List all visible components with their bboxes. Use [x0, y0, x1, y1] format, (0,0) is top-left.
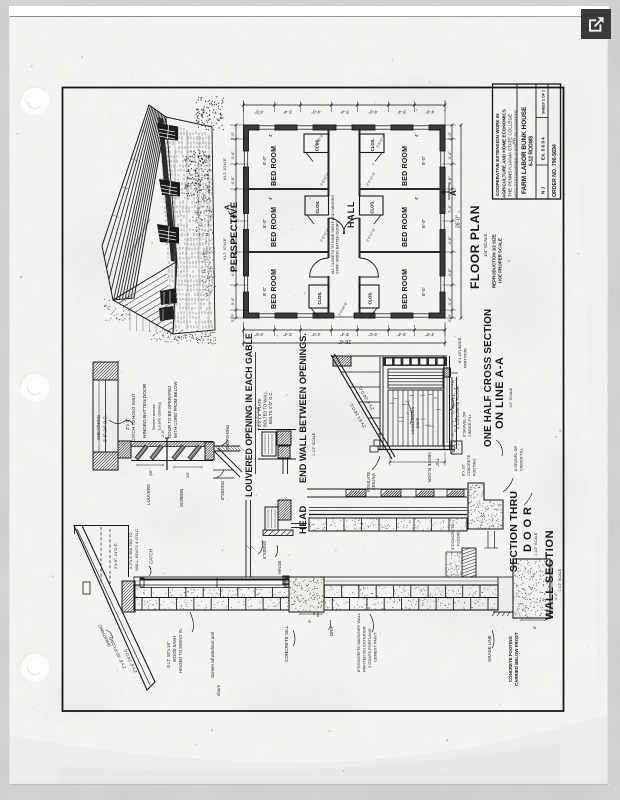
- svg-text:4'-0": 4'-0": [311, 332, 320, 337]
- svg-text:8'-0": 8'-0": [421, 218, 426, 228]
- svg-text:CLOS.: CLOS.: [315, 201, 320, 214]
- svg-text:WOOD SASH: WOOD SASH: [172, 636, 177, 662]
- svg-text:CONCRETE: CONCRETE: [467, 454, 471, 476]
- svg-text:4'-8": 4'-8": [447, 176, 452, 185]
- svg-text:ORDER NO. 790-5694: ORDER NO. 790-5694: [552, 144, 558, 197]
- svg-text:4'-0": 4'-0": [254, 332, 263, 337]
- svg-text:COOPERATIVE EXTENSION WORK IN: COOPERATIVE EXTENSION WORK IN: [495, 113, 500, 196]
- svg-text:DOOR: DOOR: [416, 417, 420, 428]
- svg-text:4': 4': [268, 133, 273, 137]
- svg-text:doors: doors: [216, 684, 221, 696]
- svg-text:FOOTING: FOOTING: [473, 459, 477, 476]
- svg-text:DOOR TO BE OPERATED: DOOR TO BE OPERATED: [167, 386, 172, 438]
- svg-text:4"CONCRETE FLOOR: 4"CONCRETE FLOOR: [455, 386, 460, 429]
- svg-text:CARRIED BELOW FROST: CARRIED BELOW FROST: [514, 632, 519, 686]
- svg-text:6"SIDING: 6"SIDING: [220, 480, 225, 500]
- svg-text:STRIP, WOOD BATTEN DOORS: STRIP, WOOD BATTEN DOORS: [336, 221, 340, 274]
- svg-text:CLOS.: CLOS.: [367, 292, 372, 305]
- svg-text:8'-0": 8'-0": [262, 218, 267, 228]
- svg-text:CEILING: CEILING: [371, 473, 376, 490]
- svg-text:3'-4": 3'-4": [230, 151, 235, 160]
- svg-text:6"GRAVEL OR: 6"GRAVEL OR: [463, 412, 467, 437]
- svg-text:4'-8": 4'-8": [230, 268, 235, 277]
- svg-text:HINGED BATTEN: HINGED BATTEN: [411, 406, 415, 434]
- svg-text:26'-0": 26'-0": [456, 215, 462, 228]
- svg-text:WITH CORD FROM BELOW: WITH CORD FROM BELOW: [173, 381, 178, 438]
- svg-text:HINGE: HINGE: [277, 561, 282, 574]
- svg-text:BOLTED TO WALL.: BOLTED TO WALL.: [263, 390, 268, 427]
- svg-text:THE PENNSYLVANIA STATE COLLEGE: THE PENNSYLVANIA STATE COLLEGE: [508, 114, 513, 197]
- svg-text:FARM LABOR BUNK HOUSE: FARM LABOR BUNK HOUSE: [521, 106, 528, 194]
- svg-text:1/4" SCALE: 1/4" SCALE: [509, 387, 513, 408]
- svg-text:4'-0": 4'-0": [425, 332, 434, 337]
- svg-text:2'-6": 2'-6": [161, 429, 165, 437]
- svg-text:CLOS.: CLOS.: [317, 292, 322, 305]
- svg-text:26'-0": 26'-0": [338, 338, 351, 344]
- svg-text:CATCH TO HOLD SHUT: CATCH TO HOLD SHUT: [131, 393, 136, 442]
- svg-text:SHEATHING: SHEATHING: [96, 414, 101, 440]
- svg-text:2-2"x 6' BOLTED TO: 2-2"x 6' BOLTED TO: [128, 532, 133, 569]
- svg-text:BOLTS 4'-0" O.C.: BOLTS 4'-0" O.C.: [268, 391, 273, 424]
- svg-text:BED ROOM: BED ROOM: [402, 269, 409, 309]
- svg-text:1 1/2" SCALE: 1 1/2" SCALE: [558, 568, 562, 592]
- svg-text:8"x 16"UNDER: 8"x 16"UNDER: [458, 337, 462, 363]
- svg-text:7'-4": 7'-4": [447, 204, 452, 213]
- svg-text:HALL: HALL: [346, 201, 356, 228]
- svg-text:USE PROPER SCALE: USE PROPER SCALE: [498, 238, 503, 283]
- svg-text:8"x 16": 8"x 16": [462, 463, 466, 476]
- svg-text:6-12 ROOMS: 6-12 ROOMS: [529, 135, 535, 166]
- svg-text:4': 4': [268, 196, 273, 200]
- svg-text:CINDER FILL: CINDER FILL: [520, 448, 524, 471]
- svg-text:LOUVERED OPENING IN EACH GABLE: LOUVERED OPENING IN EACH GABLE: [244, 333, 254, 497]
- svg-text:HINGED BATTEN DOOR: HINGED BATTEN DOOR: [142, 383, 148, 438]
- svg-text:ONE HALF CROSS SECTION: ONE HALF CROSS SECTION: [483, 309, 494, 447]
- svg-text:SECTION THRU: SECTION THRU: [508, 491, 520, 572]
- svg-text:8'-0": 8'-0": [262, 286, 267, 296]
- svg-text:3'-4": 3'-4": [283, 332, 292, 337]
- svg-text:DOOR: DOOR: [522, 503, 534, 552]
- svg-text:2'-0": 2'-0": [230, 131, 235, 140]
- svg-text:6-LT. 10"x16": 6-LT. 10"x16": [223, 157, 227, 180]
- svg-text:BED ROOM: BED ROOM: [271, 207, 278, 247]
- svg-text:2-2"x 6" PLATE: 2-2"x 6" PLATE: [257, 398, 262, 427]
- svg-text:3'-4": 3'-4": [447, 151, 452, 160]
- svg-text:ALL CLOSETS TO HAVE SHELF AND: ALL CLOSETS TO HAVE SHELF AND HANGING: [331, 195, 335, 274]
- svg-text:3'-4": 3'-4": [230, 297, 235, 306]
- svg-text:UNITED STATES DEPARTMENT OF AG: UNITED STATES DEPARTMENT OF AGRICULTURE …: [514, 110, 518, 198]
- svg-text:7'-4": 7'-4": [435, 458, 440, 467]
- svg-text:ON LINE A-A: ON LINE A-A: [494, 357, 506, 429]
- svg-text:CLOS.: CLOS.: [369, 201, 374, 214]
- svg-text:CONCRETE SILL: CONCRETE SILL: [284, 625, 289, 662]
- svg-text:4'-0": 4'-0": [368, 110, 377, 115]
- svg-text:N J: N J: [541, 186, 546, 194]
- svg-text:BED ROOM: BED ROOM: [271, 146, 278, 186]
- svg-text:1 1/2" SCALE: 1 1/2" SCALE: [312, 432, 316, 456]
- svg-text:A: A: [449, 190, 458, 196]
- svg-text:4'-8": 4'-8": [447, 268, 452, 277]
- svg-text:8'-0": 8'-0": [421, 155, 426, 165]
- svg-text:8"CONCRETE MASONRY WALL: 8"CONCRETE MASONRY WALL: [356, 612, 361, 672]
- svg-text:2"x 6", 24"O.C.: 2"x 6", 24"O.C.: [113, 542, 118, 569]
- svg-text:3'-4": 3'-4": [397, 110, 406, 115]
- svg-text:BED ROOM: BED ROOM: [402, 207, 409, 247]
- svg-text:2'-0": 2'-0": [447, 313, 452, 322]
- svg-text:7'-4": 7'-4": [230, 204, 235, 213]
- svg-text:ABOVE FLOOR.: ABOVE FLOOR.: [427, 452, 432, 483]
- svg-text:4'-0": 4'-0": [368, 332, 377, 337]
- svg-text:4'-0": 4'-0": [425, 110, 434, 115]
- svg-text:WALL. BOLTS 4'-0"O.C.: WALL. BOLTS 4'-0"O.C.: [134, 528, 139, 571]
- svg-text:SHEATHING: SHEATHING: [225, 424, 230, 450]
- svg-text:CLOS.: CLOS.: [370, 138, 375, 151]
- svg-text:2'-0": 2'-0": [447, 131, 452, 140]
- svg-text:CINDER FILL: CINDER FILL: [468, 414, 472, 437]
- svg-text:8'-0": 8'-0": [421, 286, 426, 296]
- svg-text:LOUVERS: LOUVERS: [146, 484, 151, 505]
- svg-text:3'-4": 3'-4": [340, 332, 349, 337]
- svg-text:AGRICULTURE AND HOME ECONOMICS: AGRICULTURE AND HOME ECONOMICS: [502, 109, 507, 198]
- svg-text:PAINTED ON EXTERIOR: PAINTED ON EXTERIOR: [362, 626, 367, 672]
- svg-text:6"SIDING: 6"SIDING: [262, 541, 267, 559]
- svg-text:Louvre opening: Louvre opening: [157, 402, 162, 430]
- svg-text:1 1/2" SCALE: 1 1/2" SCALE: [534, 532, 538, 556]
- svg-text:SHEET 1 OF 1: SHEET 1 OF 1: [542, 90, 546, 114]
- svg-text:END WALL BETWEEN OPENINGS.: END WALL BETWEEN OPENINGS.: [298, 333, 308, 483]
- svg-text:6"GRAVEL OR: 6"GRAVEL OR: [514, 446, 518, 471]
- svg-text:2"x 4": 2"x 4": [125, 418, 130, 430]
- svg-text:G LT. 10"x 16": G LT. 10"x 16": [166, 641, 171, 668]
- svg-text:2 COATS PORTLAND: 2 COATS PORTLAND: [367, 628, 372, 668]
- svg-text:4'-8": 4'-8": [447, 236, 452, 245]
- svg-text:3'-4": 3'-4": [397, 332, 406, 337]
- svg-text:4'-0": 4'-0": [311, 110, 320, 115]
- svg-text:4': 4': [414, 133, 419, 137]
- svg-text:SCREEN: SCREEN: [179, 489, 184, 507]
- svg-text:HEAD: HEAD: [298, 505, 309, 534]
- svg-text:4"CONCRETE: 4"CONCRETE: [450, 524, 455, 550]
- svg-text:3'-4": 3'-4": [283, 110, 292, 115]
- svg-text:Screen across: Screen across: [151, 404, 156, 430]
- svg-text:HINGED TO SWING IN.: HINGED TO SWING IN.: [178, 628, 183, 673]
- svg-text:CATCH: CATCH: [149, 549, 154, 564]
- svg-text:2'-6"-24" O.C.: 2'-6"-24" O.C.: [103, 415, 108, 442]
- svg-text:BED ROOM: BED ROOM: [402, 146, 409, 186]
- svg-text:Screen all windows and: Screen all windows and: [210, 631, 215, 678]
- svg-text:4'-8": 4'-8": [230, 236, 235, 245]
- svg-text:4': 4': [414, 196, 419, 200]
- svg-text:6-LT. 10"x16": 6-LT. 10"x16": [223, 237, 227, 260]
- svg-text:REPRODUCTION 1/2 SIZE: REPRODUCTION 1/2 SIZE: [492, 234, 497, 288]
- svg-text:2'-0": 2'-0": [230, 313, 235, 322]
- svg-text:PARTITION: PARTITION: [464, 348, 468, 368]
- svg-text:EX. 5 6 9 4: EX. 5 6 9 4: [541, 137, 546, 160]
- svg-text:CEMENT PAINT: CEMENT PAINT: [373, 632, 378, 662]
- svg-text:1/4" SCALE: 1/4" SCALE: [483, 234, 488, 257]
- svg-text:WALL SECTION: WALL SECTION: [544, 530, 556, 620]
- svg-text:3'-4": 3'-4": [340, 110, 349, 115]
- svg-text:FLOOR.: FLOOR.: [456, 531, 461, 546]
- svg-text:FLOOR PLAN: FLOOR PLAN: [468, 205, 482, 289]
- svg-text:CONCRETE FOOTING: CONCRETE FOOTING: [508, 636, 513, 682]
- svg-text:3'-4": 3'-4": [447, 297, 452, 306]
- svg-text:BED ROOM: BED ROOM: [271, 269, 278, 309]
- svg-text:4'-8": 4'-8": [230, 176, 235, 185]
- svg-text:8'-0": 8'-0": [262, 155, 267, 165]
- svg-text:3/4": 3/4": [186, 471, 190, 478]
- svg-text:GRADE LINE: GRADE LINE: [487, 635, 492, 662]
